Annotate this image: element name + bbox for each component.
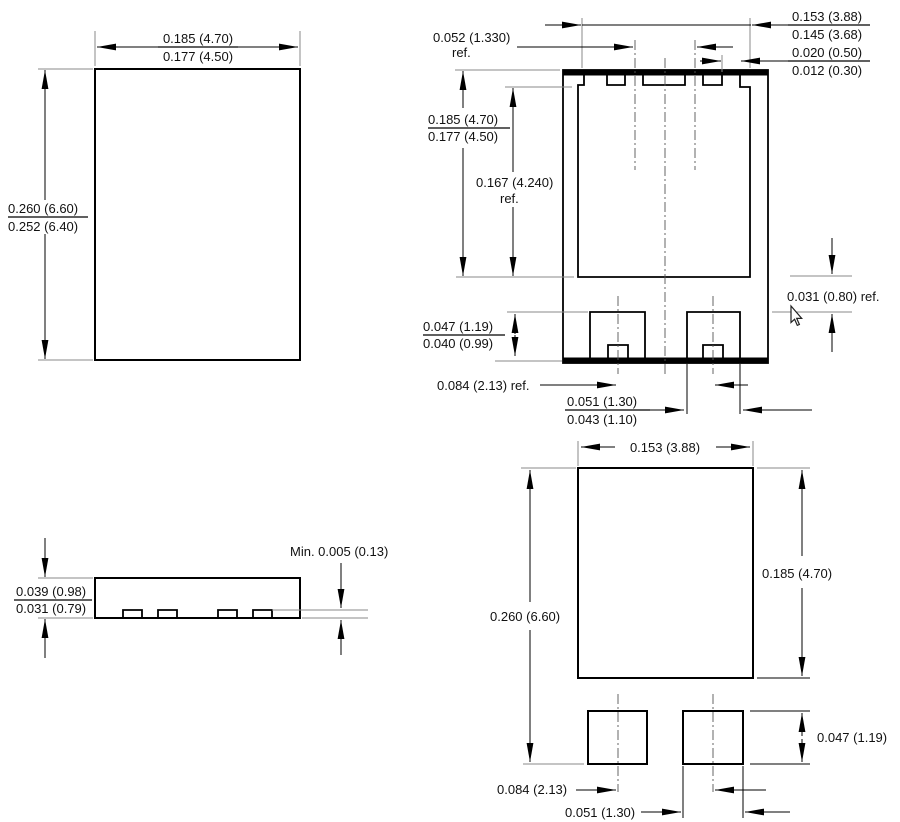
mouse-cursor <box>791 306 802 325</box>
side-view-body-outline <box>95 578 300 618</box>
standoff-min-label: Min. 0.005 (0.13) <box>290 544 388 559</box>
overall-length-label: 0.260 (6.60) <box>490 609 560 624</box>
top-view-width-min-label: 0.177 (4.50) <box>163 49 233 64</box>
top-view-height-max-label: 0.260 (6.60) <box>8 201 78 216</box>
bottom-edge-bar <box>563 358 768 364</box>
terminal-bump <box>158 610 177 618</box>
gap-ref-label: 0.031 (0.80) ref. <box>787 289 880 304</box>
top-view-width-max-label: 0.185 (4.70) <box>163 31 233 46</box>
top-view-height-min-label: 0.252 (6.40) <box>8 219 78 234</box>
terminal-pad-right <box>687 312 740 358</box>
top-notch <box>643 75 685 85</box>
land-pattern-large-pad <box>578 468 753 678</box>
terminal-width2-min-label: 0.043 (1.10) <box>567 412 637 427</box>
terminal-width2-max-label: 0.051 (1.30) <box>567 394 637 409</box>
large-pad-length-label: 0.185 (4.70) <box>762 566 832 581</box>
bottom-view-body-outline <box>563 70 768 363</box>
top-edge-bar <box>563 70 768 76</box>
side-view: 0.039 (0.98) 0.031 (0.79) Min. 0.005 (0.… <box>14 538 388 658</box>
inner-length-label: 0.167 (4.240) <box>476 175 553 190</box>
land-pattern-small-pad-left <box>588 711 647 764</box>
terminal-bump <box>218 610 237 618</box>
terminal-bump <box>123 610 142 618</box>
small-pad-width-label: 0.051 (1.30) <box>565 805 635 820</box>
pad-length-max-label: 0.185 (4.70) <box>428 112 498 127</box>
exposed-pad-outline <box>578 75 750 277</box>
notch-min-label: 0.012 (0.30) <box>792 63 862 78</box>
thickness-max-label: 0.039 (0.98) <box>16 584 86 599</box>
terminal-width-max-label: 0.153 (3.88) <box>792 9 862 24</box>
notch-max-label: 0.020 (0.50) <box>792 45 862 60</box>
top-view-body-outline <box>95 69 300 360</box>
thickness-min-label: 0.031 (0.79) <box>16 601 86 616</box>
top-notch <box>607 75 625 85</box>
drawing-canvas: 0.185 (4.70) 0.177 (4.50) 0.260 (6.60) 0… <box>0 0 900 822</box>
notch-pitch-ref-label: ref. <box>452 45 471 60</box>
pad-pitch-label: 0.084 (2.13) <box>497 782 567 797</box>
pad-length-min-label: 0.177 (4.50) <box>428 129 498 144</box>
pitch-ref-label: 0.084 (2.13) ref. <box>437 378 530 393</box>
terminal-height-min-label: 0.040 (0.99) <box>423 336 493 351</box>
inner-length-ref-label: ref. <box>500 191 519 206</box>
pad-area-width-label: 0.153 (3.88) <box>630 440 700 455</box>
small-pad-height-label: 0.047 (1.19) <box>817 730 887 745</box>
cursor-arrow-icon <box>791 306 802 325</box>
terminal-pad-left <box>590 312 645 358</box>
terminal-width-min-label: 0.145 (3.68) <box>792 27 862 42</box>
bottom-view: 0.153 (3.88) 0.145 (3.68) 0.052 (1.330) … <box>423 9 880 427</box>
package-dimension-drawing: 0.185 (4.70) 0.177 (4.50) 0.260 (6.60) 0… <box>0 0 900 822</box>
terminal-height-max-label: 0.047 (1.19) <box>423 319 493 334</box>
notch-pitch-label: 0.052 (1.330) <box>433 30 510 45</box>
land-pattern-view: 0.153 (3.88) 0.260 (6.60) 0.185 (4.70) 0… <box>490 440 887 820</box>
top-notch <box>703 75 722 85</box>
top-view: 0.185 (4.70) 0.177 (4.50) 0.260 (6.60) 0… <box>8 31 300 360</box>
terminal-bump <box>253 610 272 618</box>
